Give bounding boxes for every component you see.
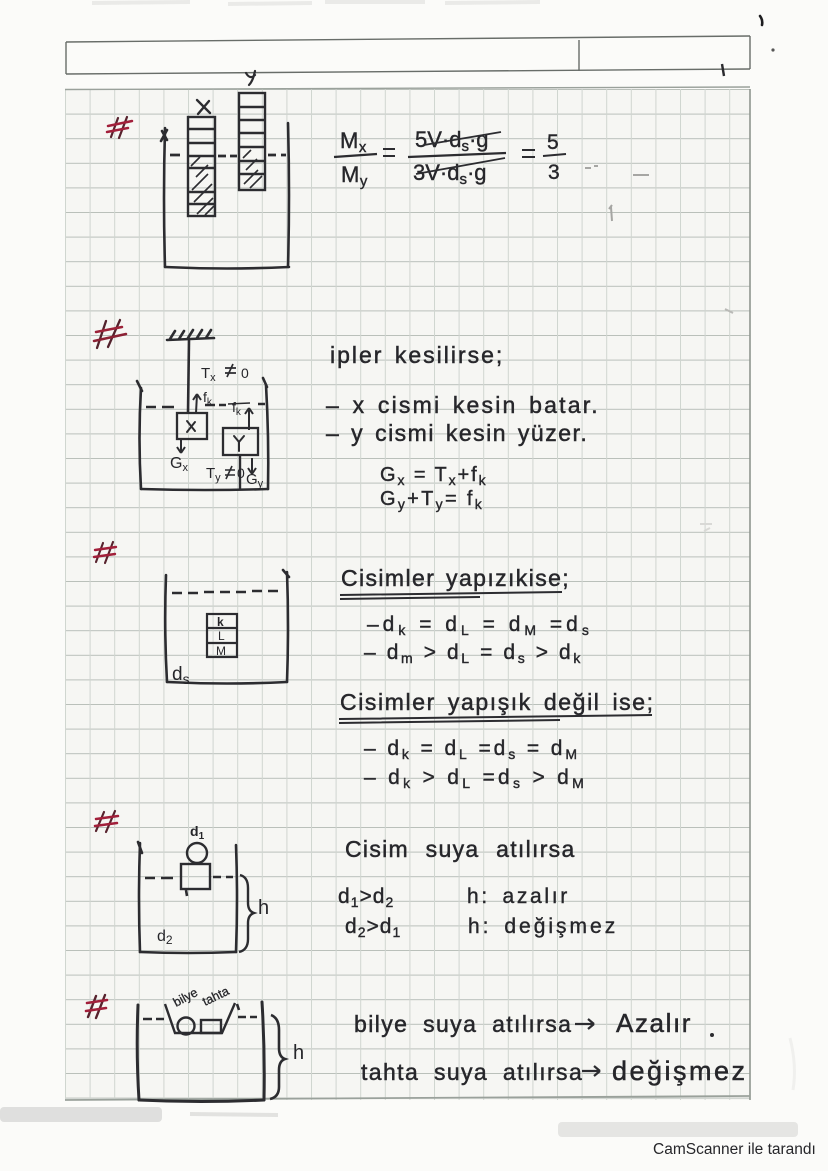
svg-text:değişmez: değişmez [612, 1056, 748, 1086]
svg-text:– y cismi kesin yüzer.: – y cismi kesin yüzer. [326, 420, 588, 446]
svg-text:h: h [293, 1042, 304, 1064]
svg-text:– x cismi kesin batar.: – x cismi kesin batar. [326, 392, 600, 418]
svg-text:Cisimler yapışık değil ise;: Cisimler yapışık değil ise; [340, 689, 655, 715]
svg-text:0: 0 [237, 465, 245, 481]
svg-text:3: 3 [548, 161, 560, 184]
svg-text:h: azalır: h: azalır [467, 885, 570, 908]
svg-text:0: 0 [241, 365, 249, 381]
svg-text:– dk = dL =ds = dM: – dk = dL =ds = dM [364, 737, 580, 762]
svg-text:– dk > dL =ds > dM: – dk > dL =ds > dM [364, 766, 587, 791]
svg-text:tahta suya atılırsa: tahta suya atılırsa [361, 1059, 583, 1085]
svg-text:Cisim suya atılırsa: Cisim suya atılırsa [345, 836, 576, 862]
svg-text:Azalır: Azalır [616, 1008, 692, 1038]
svg-text:L: L [218, 629, 225, 643]
svg-text:5: 5 [547, 131, 559, 154]
svg-text:h: h [258, 897, 269, 919]
svg-text:Gy+Ty= fk: Gy+Ty= fk [380, 488, 484, 512]
svg-text:Cisimler yapızıkise;: Cisimler yapızıkise; [341, 565, 570, 591]
svg-text:k: k [217, 615, 224, 629]
svg-text:Gx = Tx+fk: Gx = Tx+fk [380, 464, 487, 488]
svg-text:h: değişmez: h: değişmez [468, 915, 618, 938]
svg-text:ipler kesilirse;: ipler kesilirse; [330, 342, 504, 368]
svg-text:– dm > dL = ds > dk: – dm > dL = ds > dk [364, 641, 583, 666]
svg-text:bilye suya atılırsa: bilye suya atılırsa [354, 1011, 572, 1037]
svg-text:M: M [216, 644, 226, 658]
svg-text:CamScanner ile tarandı: CamScanner ile tarandı [653, 1141, 816, 1158]
